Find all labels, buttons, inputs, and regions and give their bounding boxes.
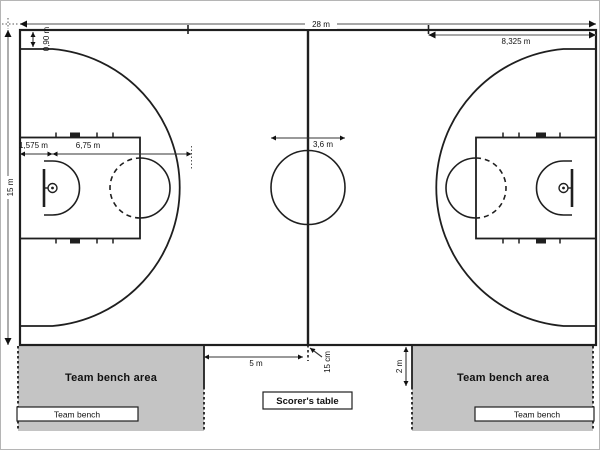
dim-court-length-label: 28 m — [312, 20, 330, 29]
court-diagram: 28 m 8,325 m 15 m 0,90 m 1,575 m 6,75 m … — [0, 0, 600, 450]
team-bench-box-right: Team bench — [475, 407, 594, 421]
dim-court-width-label: 15 m — [6, 178, 15, 196]
scorers-table-label: Scorer's table — [276, 396, 338, 407]
team-bench-area-left-label: Team bench area — [65, 372, 158, 384]
dim-three-point-offset-label: 0,90 m — [42, 26, 51, 51]
team-bench-box-left: Team bench — [17, 407, 138, 421]
dim-basket-distance-label: 1,575 m — [19, 141, 48, 150]
dim-bench-boundary-label: 2 m — [395, 360, 404, 374]
team-bench-left-label: Team bench — [54, 410, 101, 420]
team-bench-area-right-label: Team bench area — [457, 372, 550, 384]
scorers-table-box: Scorer's table — [263, 392, 352, 409]
dim-centre-line-extension-label: 15 cm — [323, 351, 332, 373]
team-bench-right-label: Team bench — [514, 410, 561, 420]
dim-bench-to-centre-label: 5 m — [249, 359, 263, 368]
dim-centre-circle-label: 3,6 m — [313, 140, 333, 149]
dim-throw-in-line-label: 8,325 m — [502, 37, 531, 46]
dim-three-point-radius-label: 6,75 m — [76, 141, 101, 150]
